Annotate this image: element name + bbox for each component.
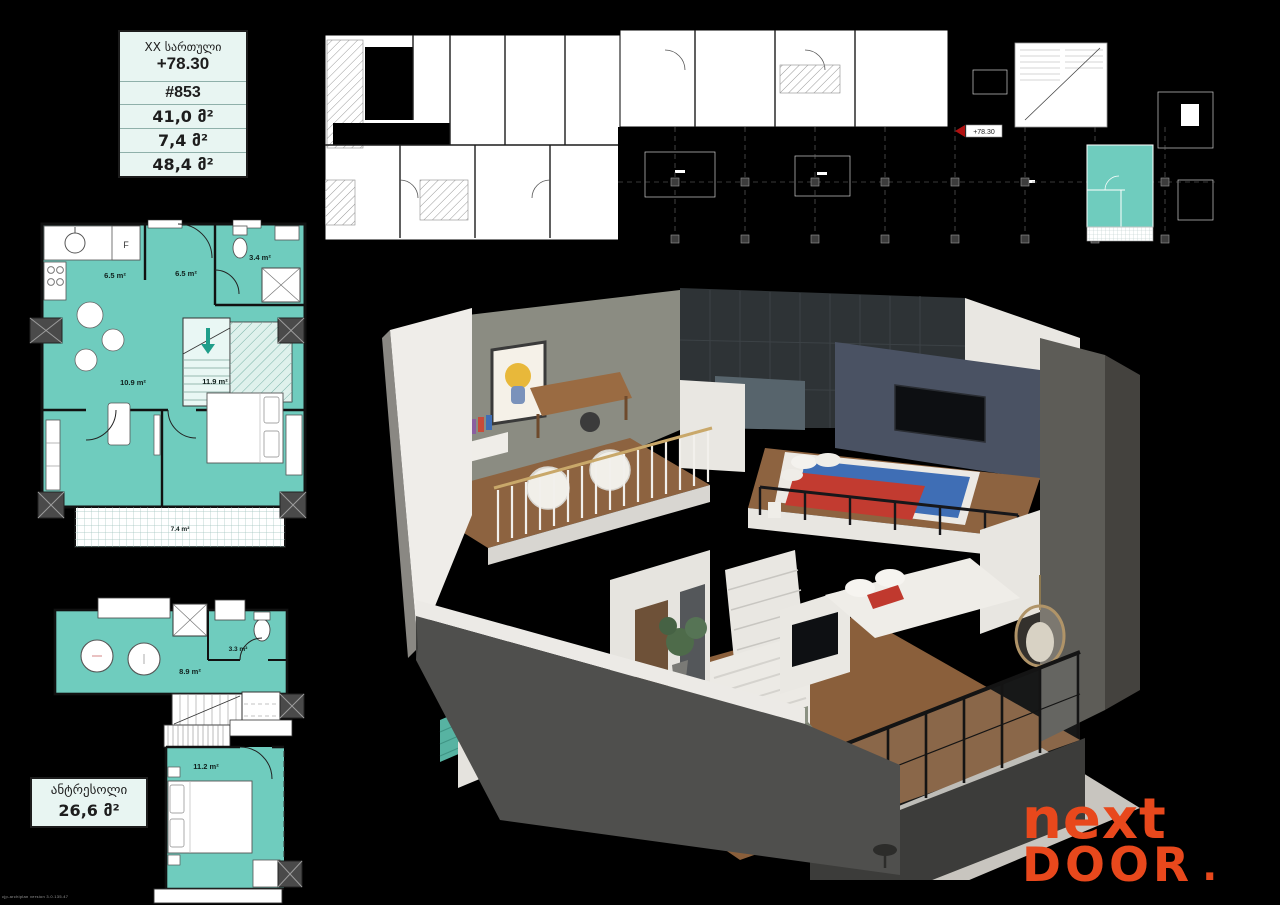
living-area-label: 10.9 m² bbox=[120, 378, 146, 387]
brochure-page: { "page": {"background": "#000000"}, "in… bbox=[0, 0, 1280, 905]
basin-icon bbox=[275, 226, 299, 240]
watermark-fine-print: cjp-archiplan version 3.0.135.47 bbox=[2, 894, 68, 899]
balcony-area-label: 7.4 m² bbox=[171, 526, 191, 533]
column bbox=[278, 861, 302, 887]
sofa-icon bbox=[46, 420, 60, 490]
info-row-floor: XX სართული +78.30 bbox=[120, 32, 246, 81]
bed-group bbox=[168, 767, 252, 865]
nextdoor-logo: next DOOR. bbox=[1022, 796, 1232, 887]
mezz-bath-area-label: 3.3 m² bbox=[229, 646, 249, 653]
balcony: 7.4 m² bbox=[75, 507, 285, 547]
tv-stand-icon bbox=[154, 415, 160, 455]
area-apartment: 41,0 მ² bbox=[120, 104, 246, 128]
bathroom-pony-wall bbox=[680, 380, 745, 472]
dresser-icon bbox=[253, 860, 280, 887]
stairs-hatch bbox=[325, 180, 355, 225]
outer-wall-right-edge bbox=[1105, 355, 1140, 710]
stairs-hatch bbox=[780, 65, 840, 93]
logo-dot: . bbox=[1202, 844, 1217, 890]
apartment-plan-level1: F bbox=[28, 210, 318, 555]
kitchen-area-label: 6.5 m² bbox=[104, 271, 126, 280]
hall-area-label: 6.5 m² bbox=[175, 269, 197, 278]
table-icon bbox=[77, 302, 103, 328]
bathroom-area-label: 3.4 m² bbox=[249, 253, 271, 262]
mezzanine-bedroom-plan: 11.2 m² bbox=[140, 715, 320, 905]
logo-line2: DOOR bbox=[1022, 846, 1193, 886]
basin-icon bbox=[215, 600, 245, 620]
railing-band bbox=[164, 725, 230, 747]
unit-number: #853 bbox=[120, 81, 246, 104]
mezzanine-label-box: ანტრესოლი 26,6 მ² bbox=[30, 777, 148, 828]
counter-icon bbox=[98, 598, 170, 618]
poster bbox=[492, 342, 545, 424]
fridge-label: F bbox=[123, 240, 129, 250]
area-balcony: 7,4 მ² bbox=[120, 128, 246, 152]
area-total: 48,4 მ² bbox=[120, 152, 246, 176]
mezzanine-area: 26,6 მ² bbox=[32, 801, 146, 820]
building-floor-plan: +78.30 bbox=[325, 30, 1215, 245]
base-strip bbox=[154, 889, 282, 903]
nightstand bbox=[768, 502, 781, 518]
mezzanine-title: ანტრესოლი bbox=[32, 783, 146, 798]
stair-core bbox=[1015, 43, 1107, 127]
wardrobe-icon bbox=[286, 415, 302, 475]
desk-chair bbox=[580, 412, 600, 432]
elevation-value: +78.30 bbox=[120, 54, 246, 79]
coffee-table-icon bbox=[108, 403, 130, 445]
window bbox=[148, 220, 182, 228]
toilet-icon bbox=[233, 238, 247, 258]
mezz-hall-area-label: 8.9 m² bbox=[179, 667, 201, 676]
upper-landing bbox=[230, 720, 292, 736]
stairs-hatch bbox=[420, 180, 468, 220]
sink-icon bbox=[65, 233, 85, 253]
elevation-marker: +78.30 bbox=[955, 125, 1002, 137]
floor-label: XX სართული bbox=[120, 34, 246, 54]
unit-info-table: XX სართული +78.30 #853 41,0 მ² 7,4 მ² 48… bbox=[118, 30, 248, 178]
bedroom-area-label: 11.9 m² bbox=[202, 377, 228, 386]
poster-art-icon bbox=[505, 363, 531, 389]
mezz-bedroom-area-label: 11.2 m² bbox=[193, 762, 219, 771]
logo-line1: next bbox=[1022, 796, 1232, 844]
highlighted-unit bbox=[1087, 145, 1153, 241]
elevation-marker-text: +78.30 bbox=[973, 129, 995, 136]
